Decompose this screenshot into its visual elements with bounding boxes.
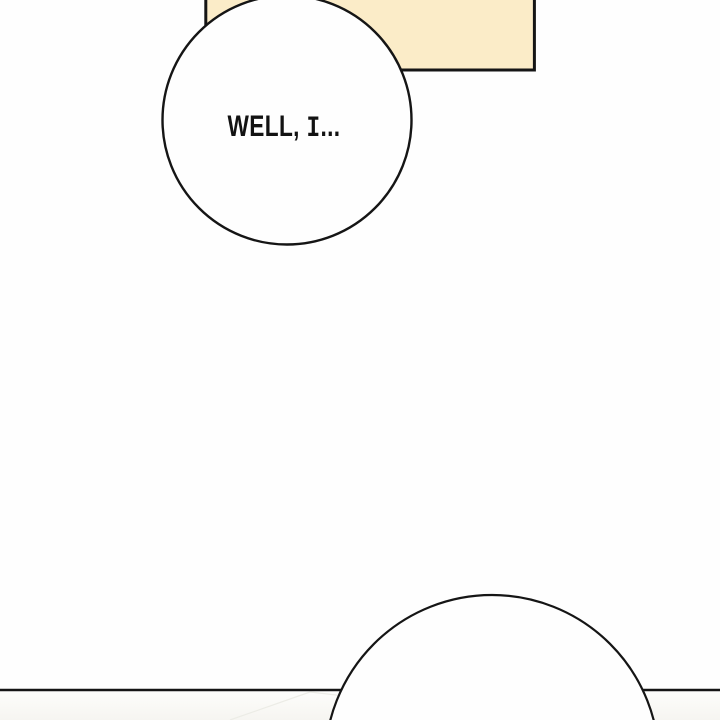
svg-text:WELL, I...: WELL, I... (228, 110, 341, 146)
